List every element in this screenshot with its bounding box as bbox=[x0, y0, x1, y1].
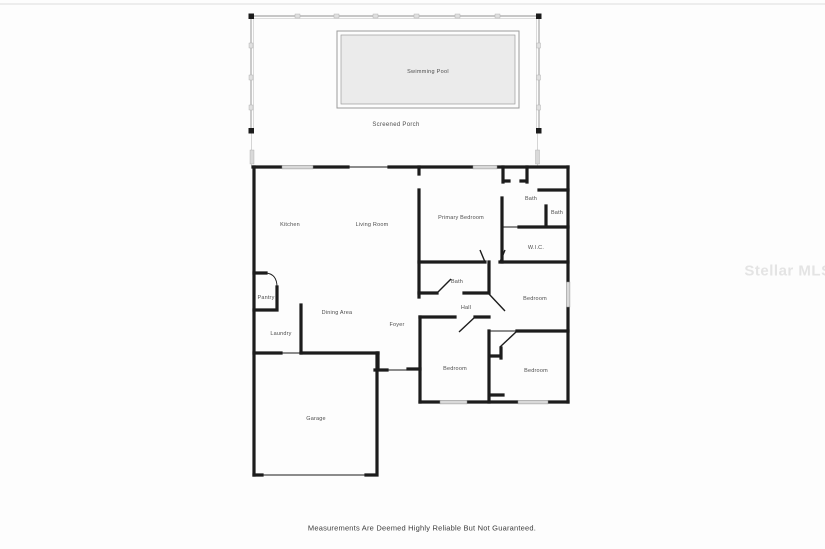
measurements-disclaimer: Measurements Are Deemed Highly Reliable … bbox=[308, 524, 536, 533]
room-label-laundry: Laundry bbox=[270, 331, 291, 337]
floorplan-drawing bbox=[0, 0, 825, 549]
room-label-kitchen: Kitchen bbox=[280, 222, 300, 228]
room-label-primary-bedroom: Primary Bedroom bbox=[438, 215, 484, 221]
room-label-hall-bath: Bath bbox=[451, 279, 463, 285]
mls-watermark: Stellar MLS bbox=[744, 263, 825, 280]
floorplan-page: KitchenLiving RoomPrimary BedroomBathBat… bbox=[0, 0, 825, 549]
screened-porch-label: Screened Porch bbox=[372, 122, 419, 128]
room-label-walk-in-closet: W.I.C. bbox=[528, 245, 544, 251]
room-label-bedroom-southeast: Bedroom bbox=[524, 368, 548, 374]
room-label-living-room: Living Room bbox=[356, 222, 389, 228]
room-label-dining-area: Dining Area bbox=[322, 310, 353, 316]
room-label-bedroom-southwest: Bedroom bbox=[443, 366, 467, 372]
room-label-foyer: Foyer bbox=[389, 322, 404, 328]
room-label-primary-bath: Bath bbox=[525, 196, 537, 202]
swimming-pool-label: Swimming Pool bbox=[407, 69, 449, 75]
room-label-garage: Garage bbox=[306, 416, 326, 422]
room-label-pantry: Pantry bbox=[257, 295, 274, 301]
room-label-bedroom-east: Bedroom bbox=[523, 296, 547, 302]
room-label-primary-bath-2: Bath bbox=[551, 210, 563, 216]
doors bbox=[260, 167, 519, 475]
room-label-hall: Hall bbox=[461, 305, 471, 311]
house-walls bbox=[253, 167, 568, 475]
